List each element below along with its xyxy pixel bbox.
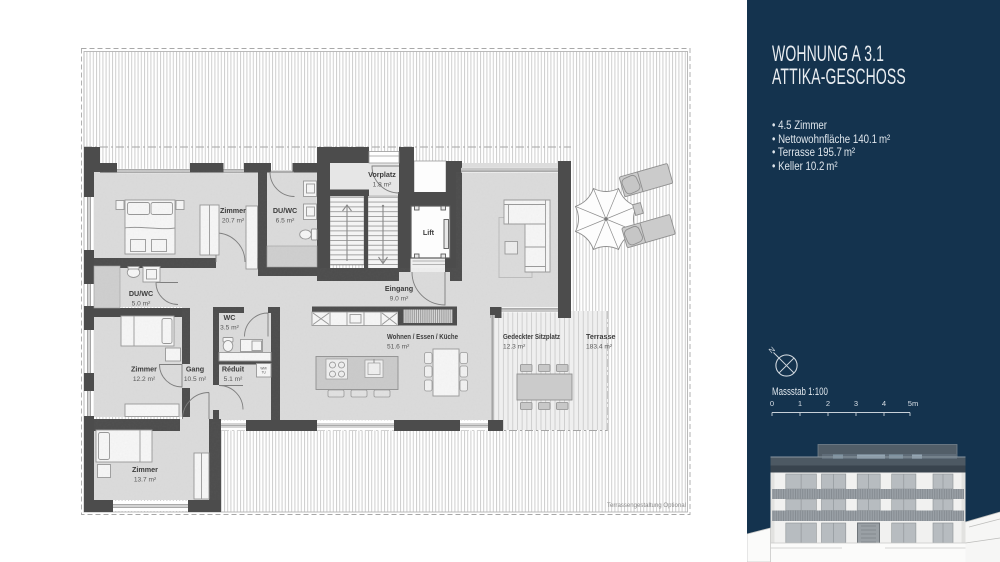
svg-text:Réduit: Réduit — [222, 365, 245, 374]
svg-text:9.0 m²: 9.0 m² — [390, 296, 409, 303]
svg-text:Vorplatz: Vorplatz — [368, 170, 396, 179]
svg-text:Wohnen / Essen / Küche: Wohnen / Essen / Küche — [387, 332, 458, 341]
svg-text:Zimmer: Zimmer — [131, 365, 157, 374]
svg-text:4: 4 — [882, 399, 886, 408]
svg-text:3.5 m²: 3.5 m² — [220, 325, 239, 332]
svg-text:Lift: Lift — [423, 228, 435, 237]
svg-text:Terrasse: Terrasse — [586, 332, 615, 341]
svg-text:12.2 m²: 12.2 m² — [133, 376, 156, 383]
svg-text:20.7 m²: 20.7 m² — [222, 218, 245, 225]
svg-text:Zimmer: Zimmer — [132, 465, 158, 474]
svg-text:N: N — [767, 345, 777, 355]
svg-text:5m: 5m — [908, 399, 919, 408]
svg-text:51.6 m²: 51.6 m² — [387, 344, 410, 351]
svg-text:1.8 m²: 1.8 m² — [373, 182, 392, 189]
svg-text:Gang: Gang — [186, 365, 204, 374]
svg-text:Gedeckter Sitzplatz: Gedeckter Sitzplatz — [503, 332, 560, 341]
svg-text:DU/WC: DU/WC — [273, 206, 297, 215]
svg-text:183.4 m²: 183.4 m² — [586, 344, 613, 351]
svg-text:13.7 m²: 13.7 m² — [134, 477, 157, 484]
svg-text:5.1 m²: 5.1 m² — [224, 376, 243, 383]
svg-text:Zimmer: Zimmer — [220, 206, 246, 215]
svg-text:10.5 m²: 10.5 m² — [184, 376, 207, 383]
svg-text:WC: WC — [224, 313, 236, 322]
svg-text:DU/WC: DU/WC — [129, 289, 153, 298]
svg-text:Terrassengestaltung Optional: Terrassengestaltung Optional — [607, 502, 686, 509]
svg-text:5.0 m²: 5.0 m² — [132, 301, 151, 308]
svg-text:1: 1 — [798, 399, 802, 408]
svg-text:6.5 m²: 6.5 m² — [276, 218, 295, 225]
svg-text:12.3 m²: 12.3 m² — [503, 344, 526, 351]
svg-text:0: 0 — [770, 399, 774, 408]
svg-text:2: 2 — [826, 399, 830, 408]
svg-text:Eingang: Eingang — [385, 284, 413, 293]
svg-text:3: 3 — [854, 399, 858, 408]
